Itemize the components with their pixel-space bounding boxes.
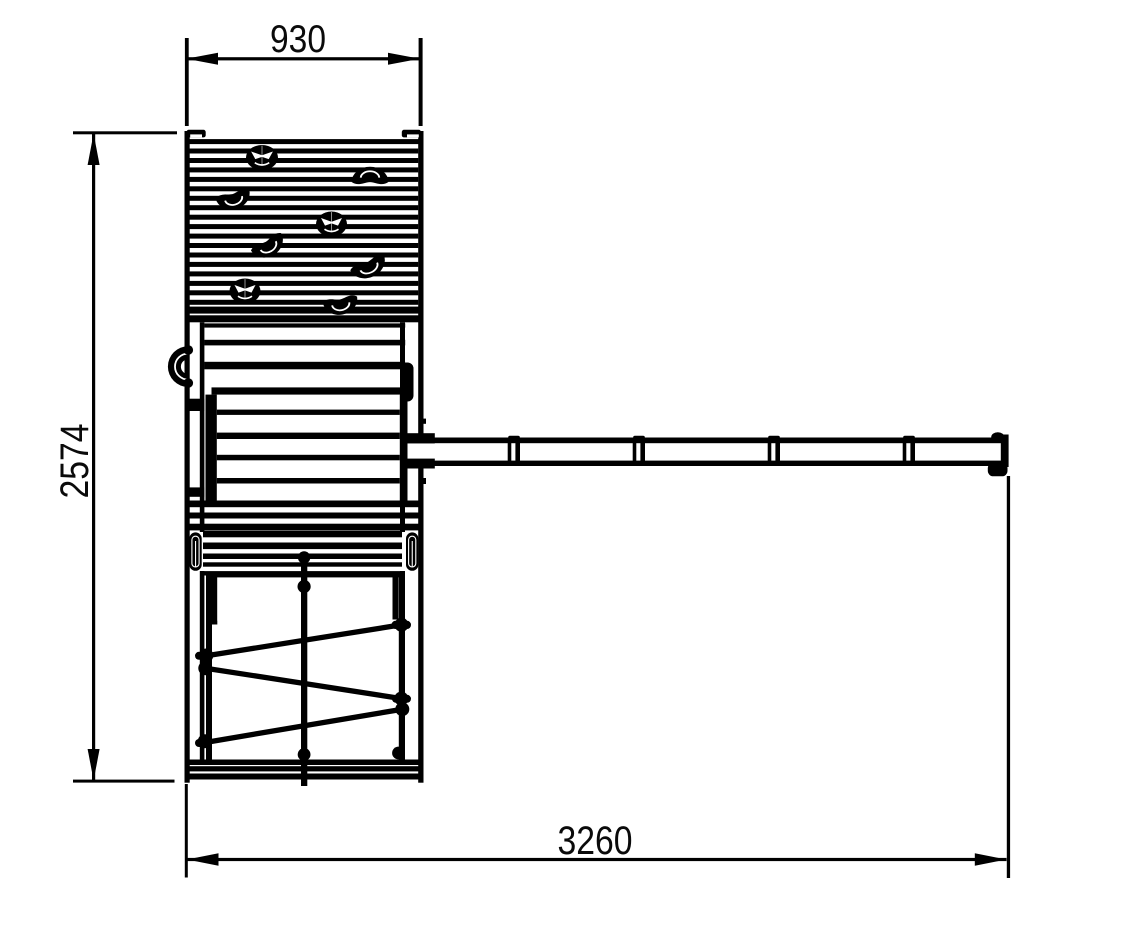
svg-text:930: 930 (270, 18, 326, 61)
svg-text:3260: 3260 (558, 819, 633, 863)
svg-text:2574: 2574 (53, 424, 97, 499)
